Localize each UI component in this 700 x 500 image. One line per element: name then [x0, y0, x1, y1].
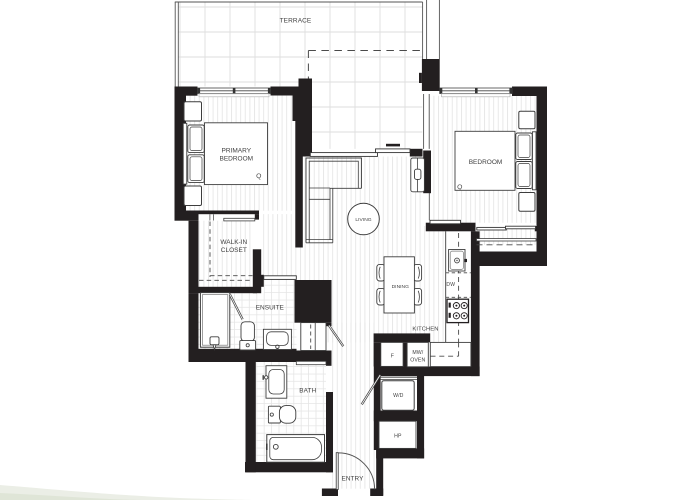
svg-text:PRIMARY: PRIMARY	[222, 148, 252, 155]
svg-text:Q: Q	[457, 184, 462, 191]
svg-text:DINING: DINING	[392, 284, 410, 290]
svg-text:WALK-IN: WALK-IN	[220, 239, 247, 246]
svg-text:KITCHEN: KITCHEN	[412, 327, 438, 333]
svg-text:LIVING: LIVING	[355, 217, 371, 223]
svg-text:TERRACE: TERRACE	[280, 18, 312, 25]
svg-text:DW: DW	[446, 282, 455, 288]
svg-text:Q: Q	[256, 173, 261, 180]
svg-text:BATH: BATH	[299, 387, 316, 394]
svg-text:F: F	[391, 354, 394, 360]
svg-text:BEDROOM: BEDROOM	[220, 155, 254, 162]
svg-text:ENTRY: ENTRY	[341, 476, 364, 483]
svg-text:OVEN: OVEN	[410, 357, 425, 363]
svg-text:W/D: W/D	[393, 393, 404, 399]
svg-text:CLOSET: CLOSET	[221, 247, 247, 254]
svg-text:HP: HP	[394, 434, 402, 440]
svg-text:BEDROOM: BEDROOM	[469, 159, 503, 166]
svg-text:ENSUITE: ENSUITE	[256, 304, 285, 311]
svg-text:MW/: MW/	[412, 350, 423, 356]
